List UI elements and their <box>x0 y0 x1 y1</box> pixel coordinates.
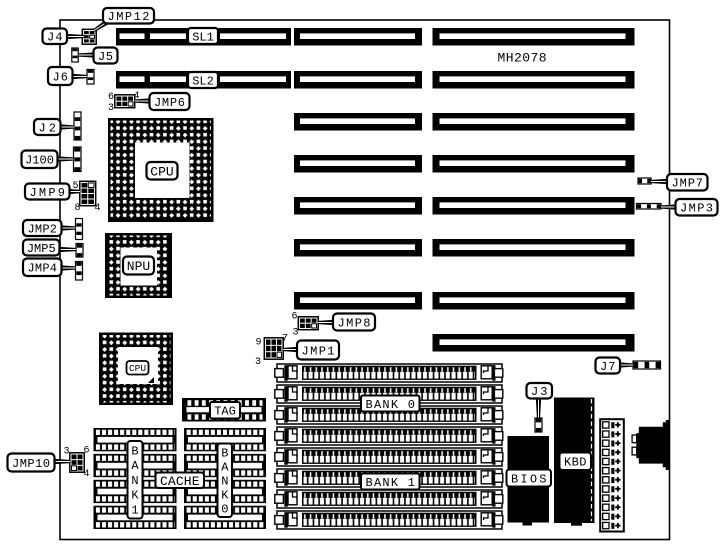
svg-text:KBD: KBD <box>564 456 587 470</box>
svg-text:4: 4 <box>94 203 100 214</box>
svg-text:JMP2: JMP2 <box>28 222 58 236</box>
svg-text:NPU: NPU <box>127 259 150 274</box>
svg-text:JMP8: JMP8 <box>338 316 371 330</box>
svg-text:JMP3: JMP3 <box>680 202 713 216</box>
svg-text:N: N <box>221 475 228 489</box>
svg-text:TAG: TAG <box>214 405 236 419</box>
svg-text:6: 6 <box>291 312 297 323</box>
svg-text:1: 1 <box>131 503 138 517</box>
svg-text:6: 6 <box>83 446 89 457</box>
svg-text:JMP5: JMP5 <box>27 242 56 256</box>
svg-text:J6: J6 <box>53 70 69 84</box>
svg-text:6: 6 <box>108 92 114 103</box>
svg-text:3: 3 <box>63 447 69 458</box>
svg-text:SL1: SL1 <box>192 30 214 44</box>
svg-text:A: A <box>221 461 229 475</box>
svg-text:J100: J100 <box>25 154 54 168</box>
svg-text:7: 7 <box>282 334 288 345</box>
svg-text:3: 3 <box>255 357 261 368</box>
svg-text:3: 3 <box>292 328 298 339</box>
svg-text:N: N <box>131 474 138 488</box>
svg-text:J5: J5 <box>98 50 113 64</box>
svg-text:JMP7: JMP7 <box>672 177 704 191</box>
svg-text:SL2: SL2 <box>192 74 214 88</box>
svg-text:B: B <box>131 445 138 459</box>
svg-text:JMP4: JMP4 <box>28 262 58 276</box>
svg-text:A: A <box>131 459 139 473</box>
svg-text:JMP10: JMP10 <box>12 457 50 471</box>
svg-text:9: 9 <box>255 338 261 349</box>
svg-text:B: B <box>221 447 228 461</box>
svg-text:J7: J7 <box>600 360 616 374</box>
svg-text:MH2078: MH2078 <box>498 51 547 66</box>
svg-text:CPU: CPU <box>129 363 146 374</box>
svg-text:CACHE: CACHE <box>160 474 200 489</box>
svg-text:CPU: CPU <box>150 164 173 179</box>
svg-text:J4: J4 <box>47 31 63 45</box>
svg-text:0: 0 <box>221 503 228 517</box>
svg-text:K: K <box>221 489 229 503</box>
svg-text:K: K <box>131 489 139 503</box>
svg-text:8: 8 <box>74 203 80 214</box>
svg-text:4: 4 <box>83 469 89 480</box>
svg-text:JMP1: JMP1 <box>302 344 335 358</box>
svg-text:JMP6: JMP6 <box>154 96 185 110</box>
svg-text:JMP12: JMP12 <box>108 10 150 24</box>
svg-text:3: 3 <box>108 103 114 114</box>
